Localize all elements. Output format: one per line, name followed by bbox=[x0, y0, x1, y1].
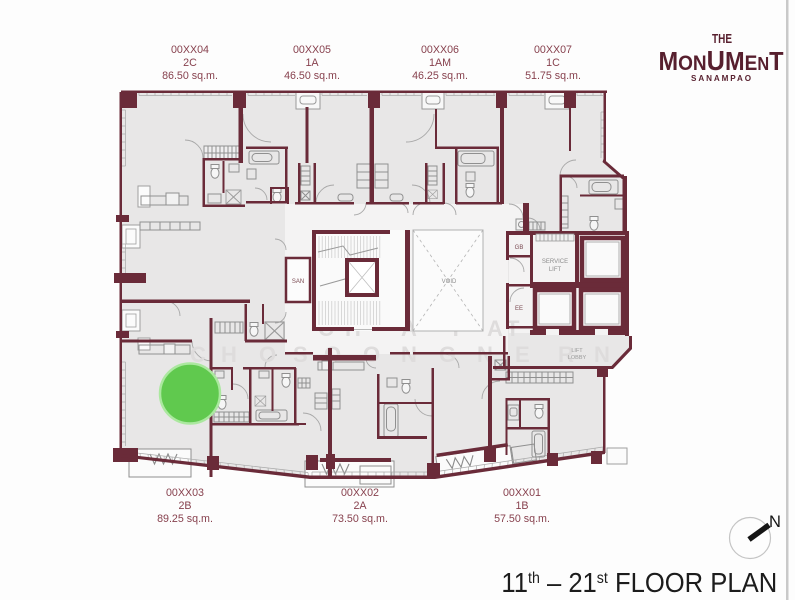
svg-text:46.25 sq.m.: 46.25 sq.m. bbox=[412, 70, 468, 82]
svg-text:LIFT: LIFT bbox=[571, 348, 583, 354]
svg-text:A: A bbox=[487, 316, 503, 341]
svg-text:O: O bbox=[259, 342, 276, 367]
svg-text:H: H bbox=[221, 342, 237, 367]
svg-text:SERVICE: SERVICE bbox=[542, 259, 568, 265]
svg-text:57.50 sq.m.: 57.50 sq.m. bbox=[494, 513, 550, 525]
svg-text:E: E bbox=[515, 342, 530, 367]
svg-text:00XX03: 00XX03 bbox=[166, 487, 204, 499]
svg-text:1B: 1B bbox=[515, 500, 528, 512]
svg-text:11th – 21st FLOOR PLAN: 11th – 21st FLOOR PLAN bbox=[501, 567, 777, 598]
svg-text:VOID: VOID bbox=[442, 279, 457, 285]
svg-text:51.75 sq.m.: 51.75 sq.m. bbox=[525, 70, 581, 82]
svg-text:00XX04: 00XX04 bbox=[171, 44, 209, 56]
svg-text:N: N bbox=[769, 513, 781, 531]
svg-text:2A: 2A bbox=[353, 500, 367, 512]
svg-text:00XX05: 00XX05 bbox=[293, 44, 331, 56]
svg-text:00XX07: 00XX07 bbox=[534, 44, 572, 56]
svg-text:1C: 1C bbox=[546, 57, 560, 69]
svg-text:LIFT: LIFT bbox=[549, 267, 562, 273]
svg-text:N: N bbox=[594, 342, 610, 367]
svg-text:O: O bbox=[324, 342, 341, 367]
svg-text:1AM: 1AM bbox=[429, 57, 451, 69]
svg-text:46.50 sq.m.: 46.50 sq.m. bbox=[284, 70, 340, 82]
svg-text:86.50 sq.m.: 86.50 sq.m. bbox=[162, 70, 218, 82]
svg-text:2B: 2B bbox=[178, 500, 191, 512]
svg-text:O: O bbox=[363, 342, 380, 367]
svg-text:00XX02: 00XX02 bbox=[341, 487, 379, 499]
svg-text:89.25 sq.m.: 89.25 sq.m. bbox=[157, 513, 213, 525]
svg-text:2C: 2C bbox=[183, 57, 197, 69]
svg-text:LOBBY: LOBBY bbox=[568, 355, 587, 361]
svg-text:1A: 1A bbox=[305, 57, 319, 69]
svg-text:00XX06: 00XX06 bbox=[421, 44, 459, 56]
svg-text:EE: EE bbox=[515, 306, 523, 312]
svg-text:00XX01: 00XX01 bbox=[503, 487, 541, 499]
svg-text:SAN: SAN bbox=[292, 279, 304, 285]
svg-text:SANAMPAO: SANAMPAO bbox=[691, 73, 753, 83]
svg-text:73.50 sq.m.: 73.50 sq.m. bbox=[332, 513, 388, 525]
svg-text:GB: GB bbox=[515, 245, 524, 251]
svg-text:THE: THE bbox=[712, 32, 732, 46]
